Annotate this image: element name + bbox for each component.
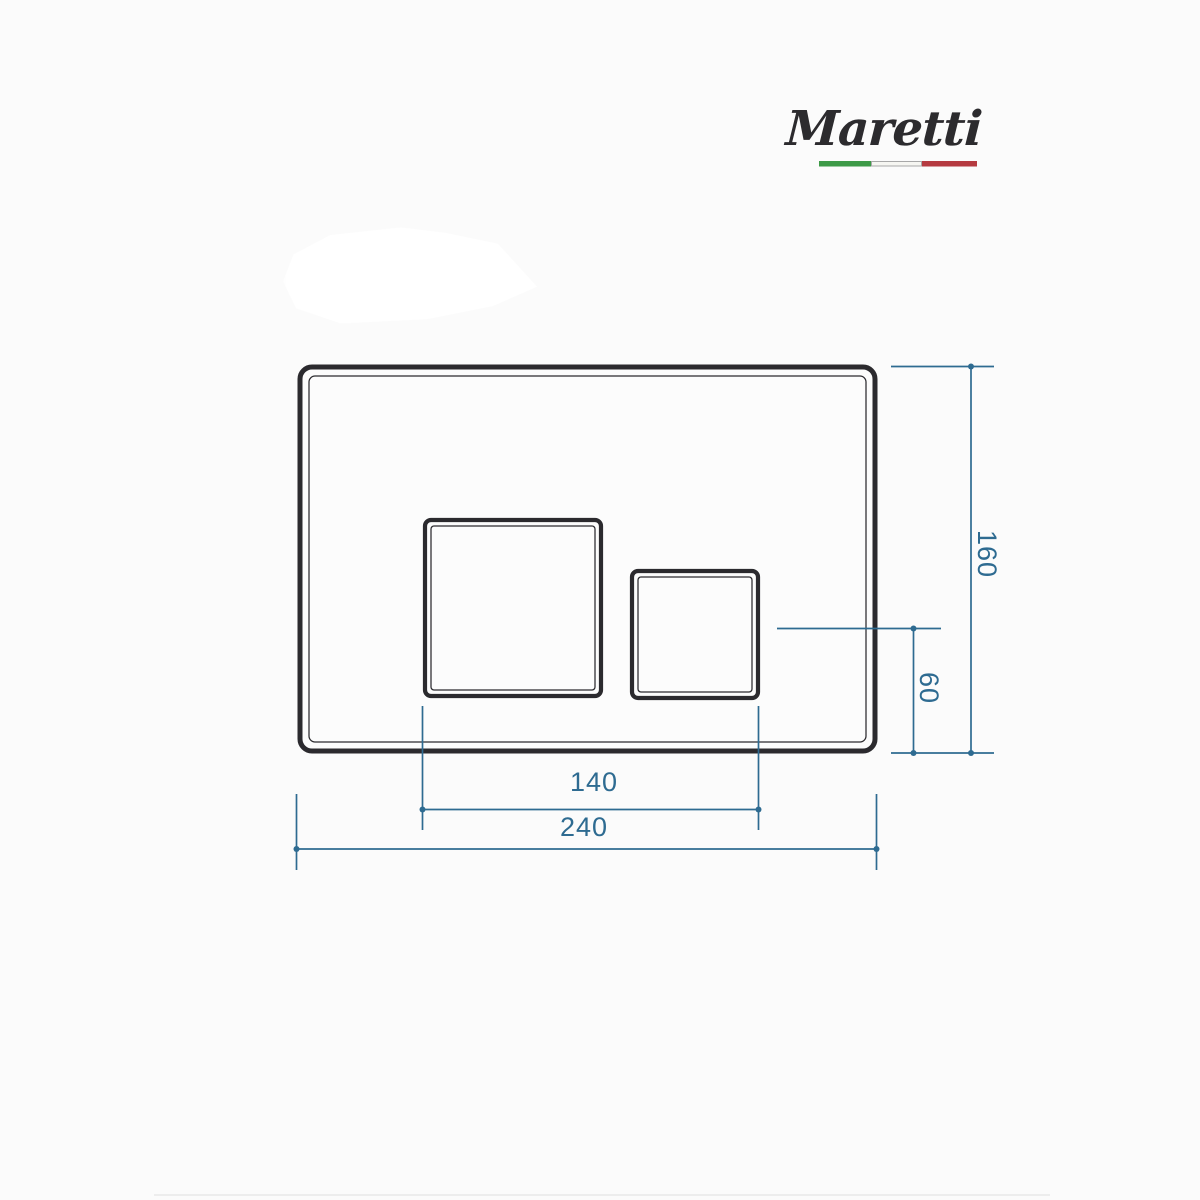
small-flush-button	[632, 571, 758, 698]
dimension-height-160: 160	[891, 364, 1002, 757]
dimension-label-160: 160	[972, 530, 1002, 578]
technical-drawing-canvas: 160 60 140 240	[0, 0, 1200, 1200]
dimension-label-240: 240	[560, 812, 608, 842]
dimension-label-60: 60	[914, 672, 944, 704]
dimension-label-140: 140	[570, 767, 618, 797]
page-background: Maretti 160	[0, 0, 1200, 1200]
bottom-divider-line	[154, 1194, 1050, 1196]
large-flush-button	[425, 520, 601, 696]
dimension-width-240: 240	[294, 794, 880, 870]
